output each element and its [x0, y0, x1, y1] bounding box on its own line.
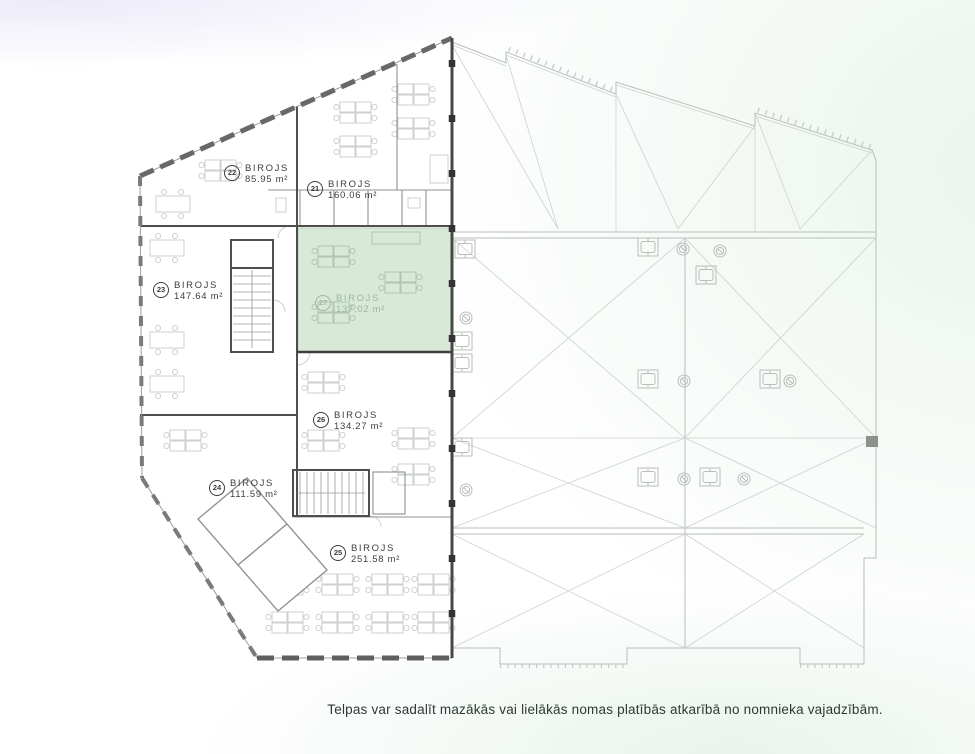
- room-area: 147.64 m²: [174, 292, 223, 303]
- floorplan-drawing: [0, 0, 975, 754]
- caption-text: Telpas var sadalīt mazākās vai lielākās …: [327, 702, 882, 717]
- room-label-21: 21 BIROJS 160.06 m²: [307, 180, 377, 202]
- room-number-badge: 23: [153, 282, 169, 298]
- room-label-27-highlighted: 27 BIROJS 137.02 m²: [315, 294, 385, 316]
- floorplan-page: 22 BIROJS 85.95 m² 21 BIROJS 160.06 m² 2…: [0, 0, 975, 754]
- room-number-badge: 24: [209, 480, 225, 496]
- roof-plan: [452, 42, 878, 666]
- room-area: 134.27 m²: [334, 422, 383, 433]
- room-area: 251.58 m²: [351, 555, 400, 566]
- room-number-badge: 21: [307, 181, 323, 197]
- highlighted-room[interactable]: [298, 228, 451, 352]
- room-number-badge: 27: [315, 295, 331, 311]
- room-label-22: 22 BIROJS 85.95 m²: [224, 164, 289, 186]
- roof-outline: [452, 42, 876, 664]
- room-label-26: 26 BIROJS 134.27 m²: [313, 411, 383, 433]
- roof-hatch-symbols: [452, 238, 780, 486]
- room-label-25: 25 BIROJS 251.58 m²: [330, 544, 400, 566]
- room-label-24: 24 BIROJS 111.59 m²: [209, 479, 278, 501]
- room-area: 85.95 m²: [245, 175, 289, 186]
- room-label-23: 23 BIROJS 147.64 m²: [153, 281, 223, 303]
- roof-drain-symbols: [460, 243, 796, 496]
- room-number-badge: 22: [224, 165, 240, 181]
- room-number-badge: 26: [313, 412, 329, 428]
- room-area: 160.06 m²: [328, 191, 377, 202]
- room-area: 111.59 m²: [230, 490, 278, 501]
- office-plan: [140, 38, 455, 658]
- room-area: 137.02 m²: [336, 305, 385, 316]
- roof-access-mark: [866, 436, 878, 447]
- room-number-badge: 25: [330, 545, 346, 561]
